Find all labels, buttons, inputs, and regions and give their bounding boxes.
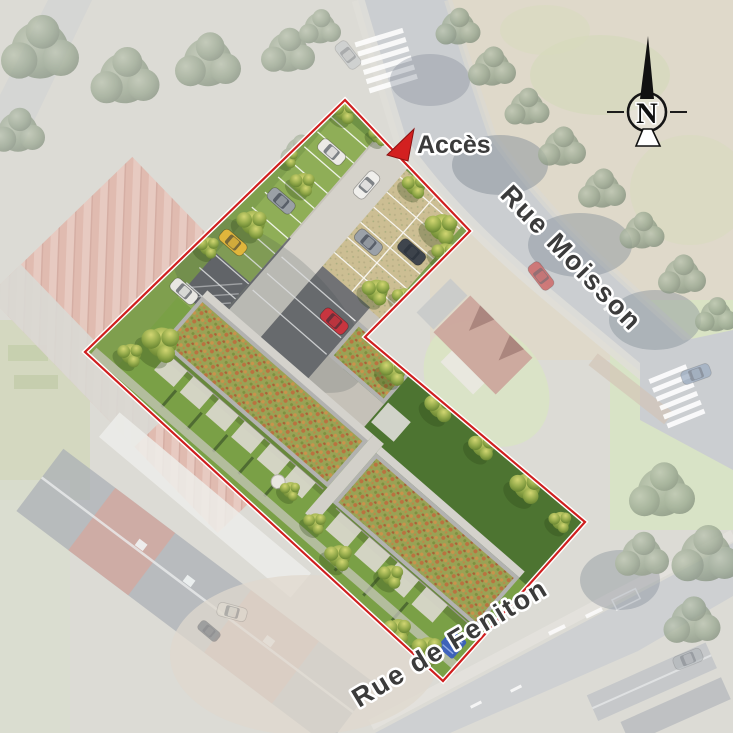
aerial-site-plan: Accès Rue Moisson Rue de Feniton N [0,0,733,733]
site-plan-map: Accès Rue Moisson Rue de Feniton N [0,0,733,733]
compass-north-letter: N [636,97,658,130]
access-label: Accès [417,131,491,159]
